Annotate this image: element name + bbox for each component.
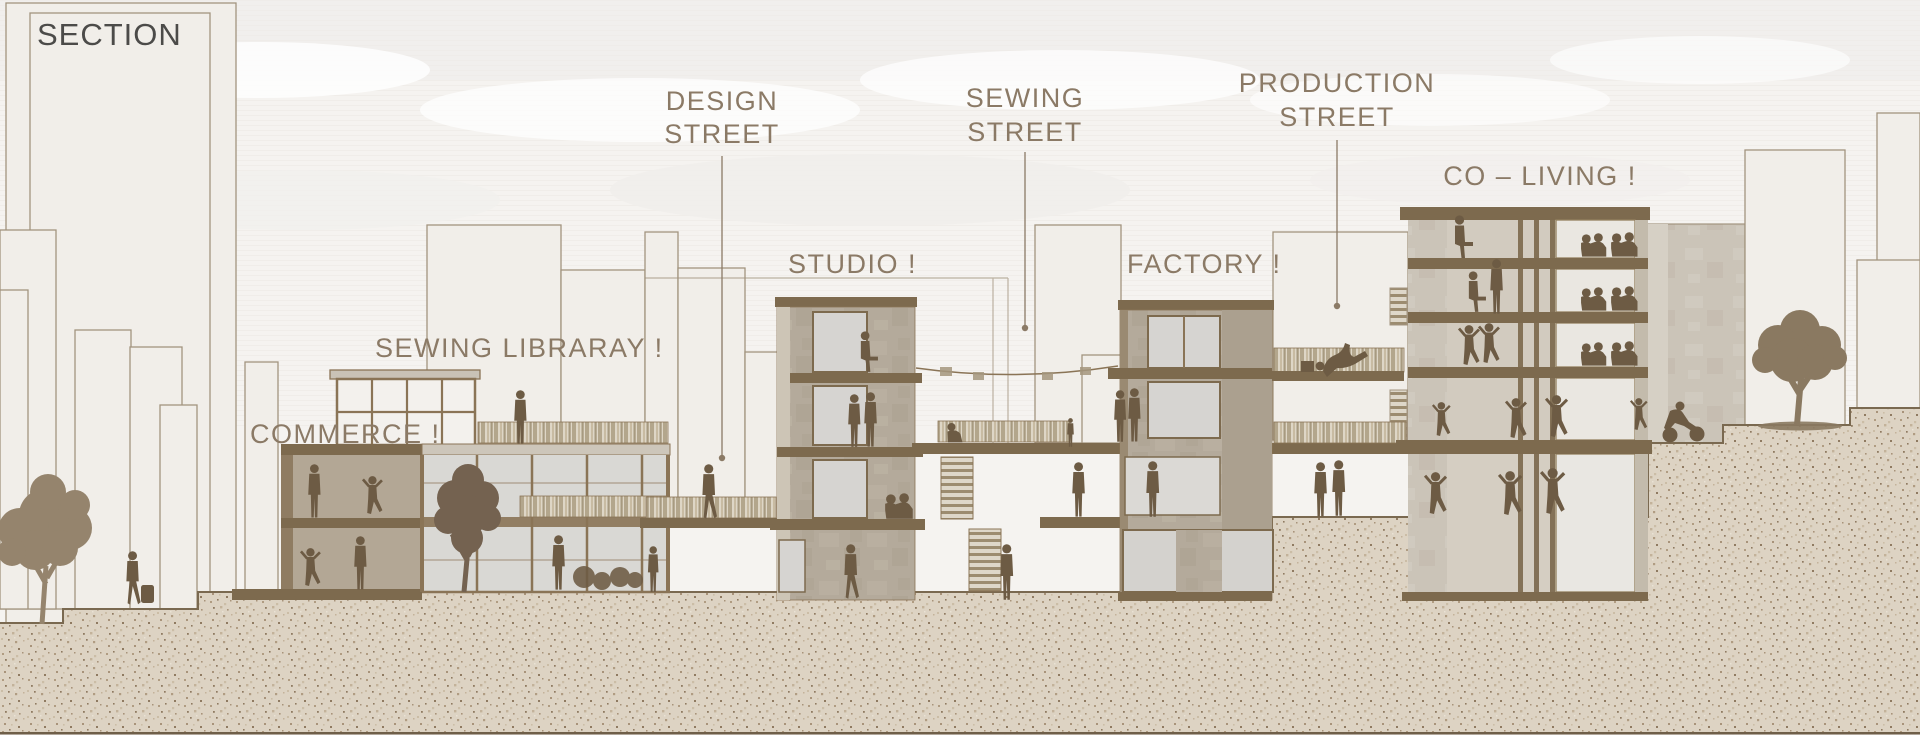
bg-building xyxy=(745,352,778,519)
design-street-label-1: DESIGN xyxy=(666,86,779,116)
bg-building xyxy=(75,330,131,609)
commerce-mezzanine-railing xyxy=(520,496,667,517)
studio-slab-1 xyxy=(790,373,922,383)
studio-slab-2 xyxy=(777,447,923,457)
design-street-label-2: STREET xyxy=(664,119,780,149)
bottom-margin xyxy=(0,735,1920,738)
coliving-slab-2 xyxy=(1408,367,1648,378)
section-title: SECTION xyxy=(37,17,182,52)
production-street-label-1: PRODUCTION xyxy=(1239,68,1436,98)
factory-pier xyxy=(1222,310,1272,530)
studio-roof-slab xyxy=(775,297,917,307)
studio-window-3 xyxy=(813,460,867,518)
sewing-library-label: SEWING LIBRARAY ! xyxy=(375,333,664,363)
design-street-leader-dot xyxy=(719,455,725,461)
coliving-roof-slab xyxy=(1400,207,1650,220)
coliving-slab-4 xyxy=(1408,258,1648,269)
commerce-roof-slab xyxy=(422,444,670,455)
coliving-interior-lower xyxy=(1447,454,1556,592)
coliving-heavy-slab xyxy=(1396,440,1652,454)
sewing-street-label-1: SEWING xyxy=(966,83,1085,113)
bg-building xyxy=(160,405,197,609)
factory-window-3 xyxy=(1125,457,1220,515)
factory-roof-slab xyxy=(1118,300,1274,310)
co-living-label: CO – LIVING ! xyxy=(1443,161,1637,191)
stair-upper xyxy=(941,457,973,519)
bridge-slab xyxy=(640,518,792,528)
bg-building xyxy=(245,362,278,592)
commerce-base-slab xyxy=(232,589,422,600)
commerce-roof-railing xyxy=(478,422,668,443)
coliving-window-ground xyxy=(1556,454,1635,592)
factory-window-2 xyxy=(1148,382,1220,438)
studio-label: STUDIO ! xyxy=(788,249,917,279)
stair-lower xyxy=(969,529,1001,591)
bg-building xyxy=(1857,260,1920,408)
factory-base-slab xyxy=(1118,592,1272,601)
sewing-street-leader-dot xyxy=(1022,325,1028,331)
commerce-frame-left xyxy=(420,455,424,592)
commerce-mid-slab xyxy=(281,518,422,528)
studio-slab-3 xyxy=(770,519,925,530)
upper-bridge-slab xyxy=(1272,371,1404,381)
coliving-base-slab xyxy=(1402,592,1648,601)
production-street-label-2: STREET xyxy=(1279,102,1395,132)
bg-concrete-edge xyxy=(1648,224,1668,443)
factory-ground-pier xyxy=(1176,530,1222,592)
factory-building xyxy=(1108,300,1274,601)
section-canvas: SECTION DESIGN STREET SEWING STREET PROD… xyxy=(0,0,1920,738)
factory-label: FACTORY ! xyxy=(1127,249,1282,279)
lower-bridge-railing xyxy=(1274,422,1406,443)
studio-window-ground xyxy=(779,540,805,592)
bg-louver xyxy=(1390,288,1407,325)
commerce-label: COMMERCE ! xyxy=(250,419,441,449)
bottom-border-line xyxy=(0,732,1920,735)
sewing-street-label-2: STREET xyxy=(967,117,1083,147)
library-roof-slab xyxy=(330,370,480,379)
studio-window-1 xyxy=(813,312,867,372)
production-street-leader-dot xyxy=(1334,303,1340,309)
architectural-section-drawing: SECTION DESIGN STREET SEWING STREET PROD… xyxy=(0,0,1920,738)
bg-building xyxy=(1273,232,1408,440)
coliving-window-f1 xyxy=(1556,378,1635,440)
coliving-slab-3 xyxy=(1408,312,1648,323)
factory-slab-1 xyxy=(1108,368,1272,379)
